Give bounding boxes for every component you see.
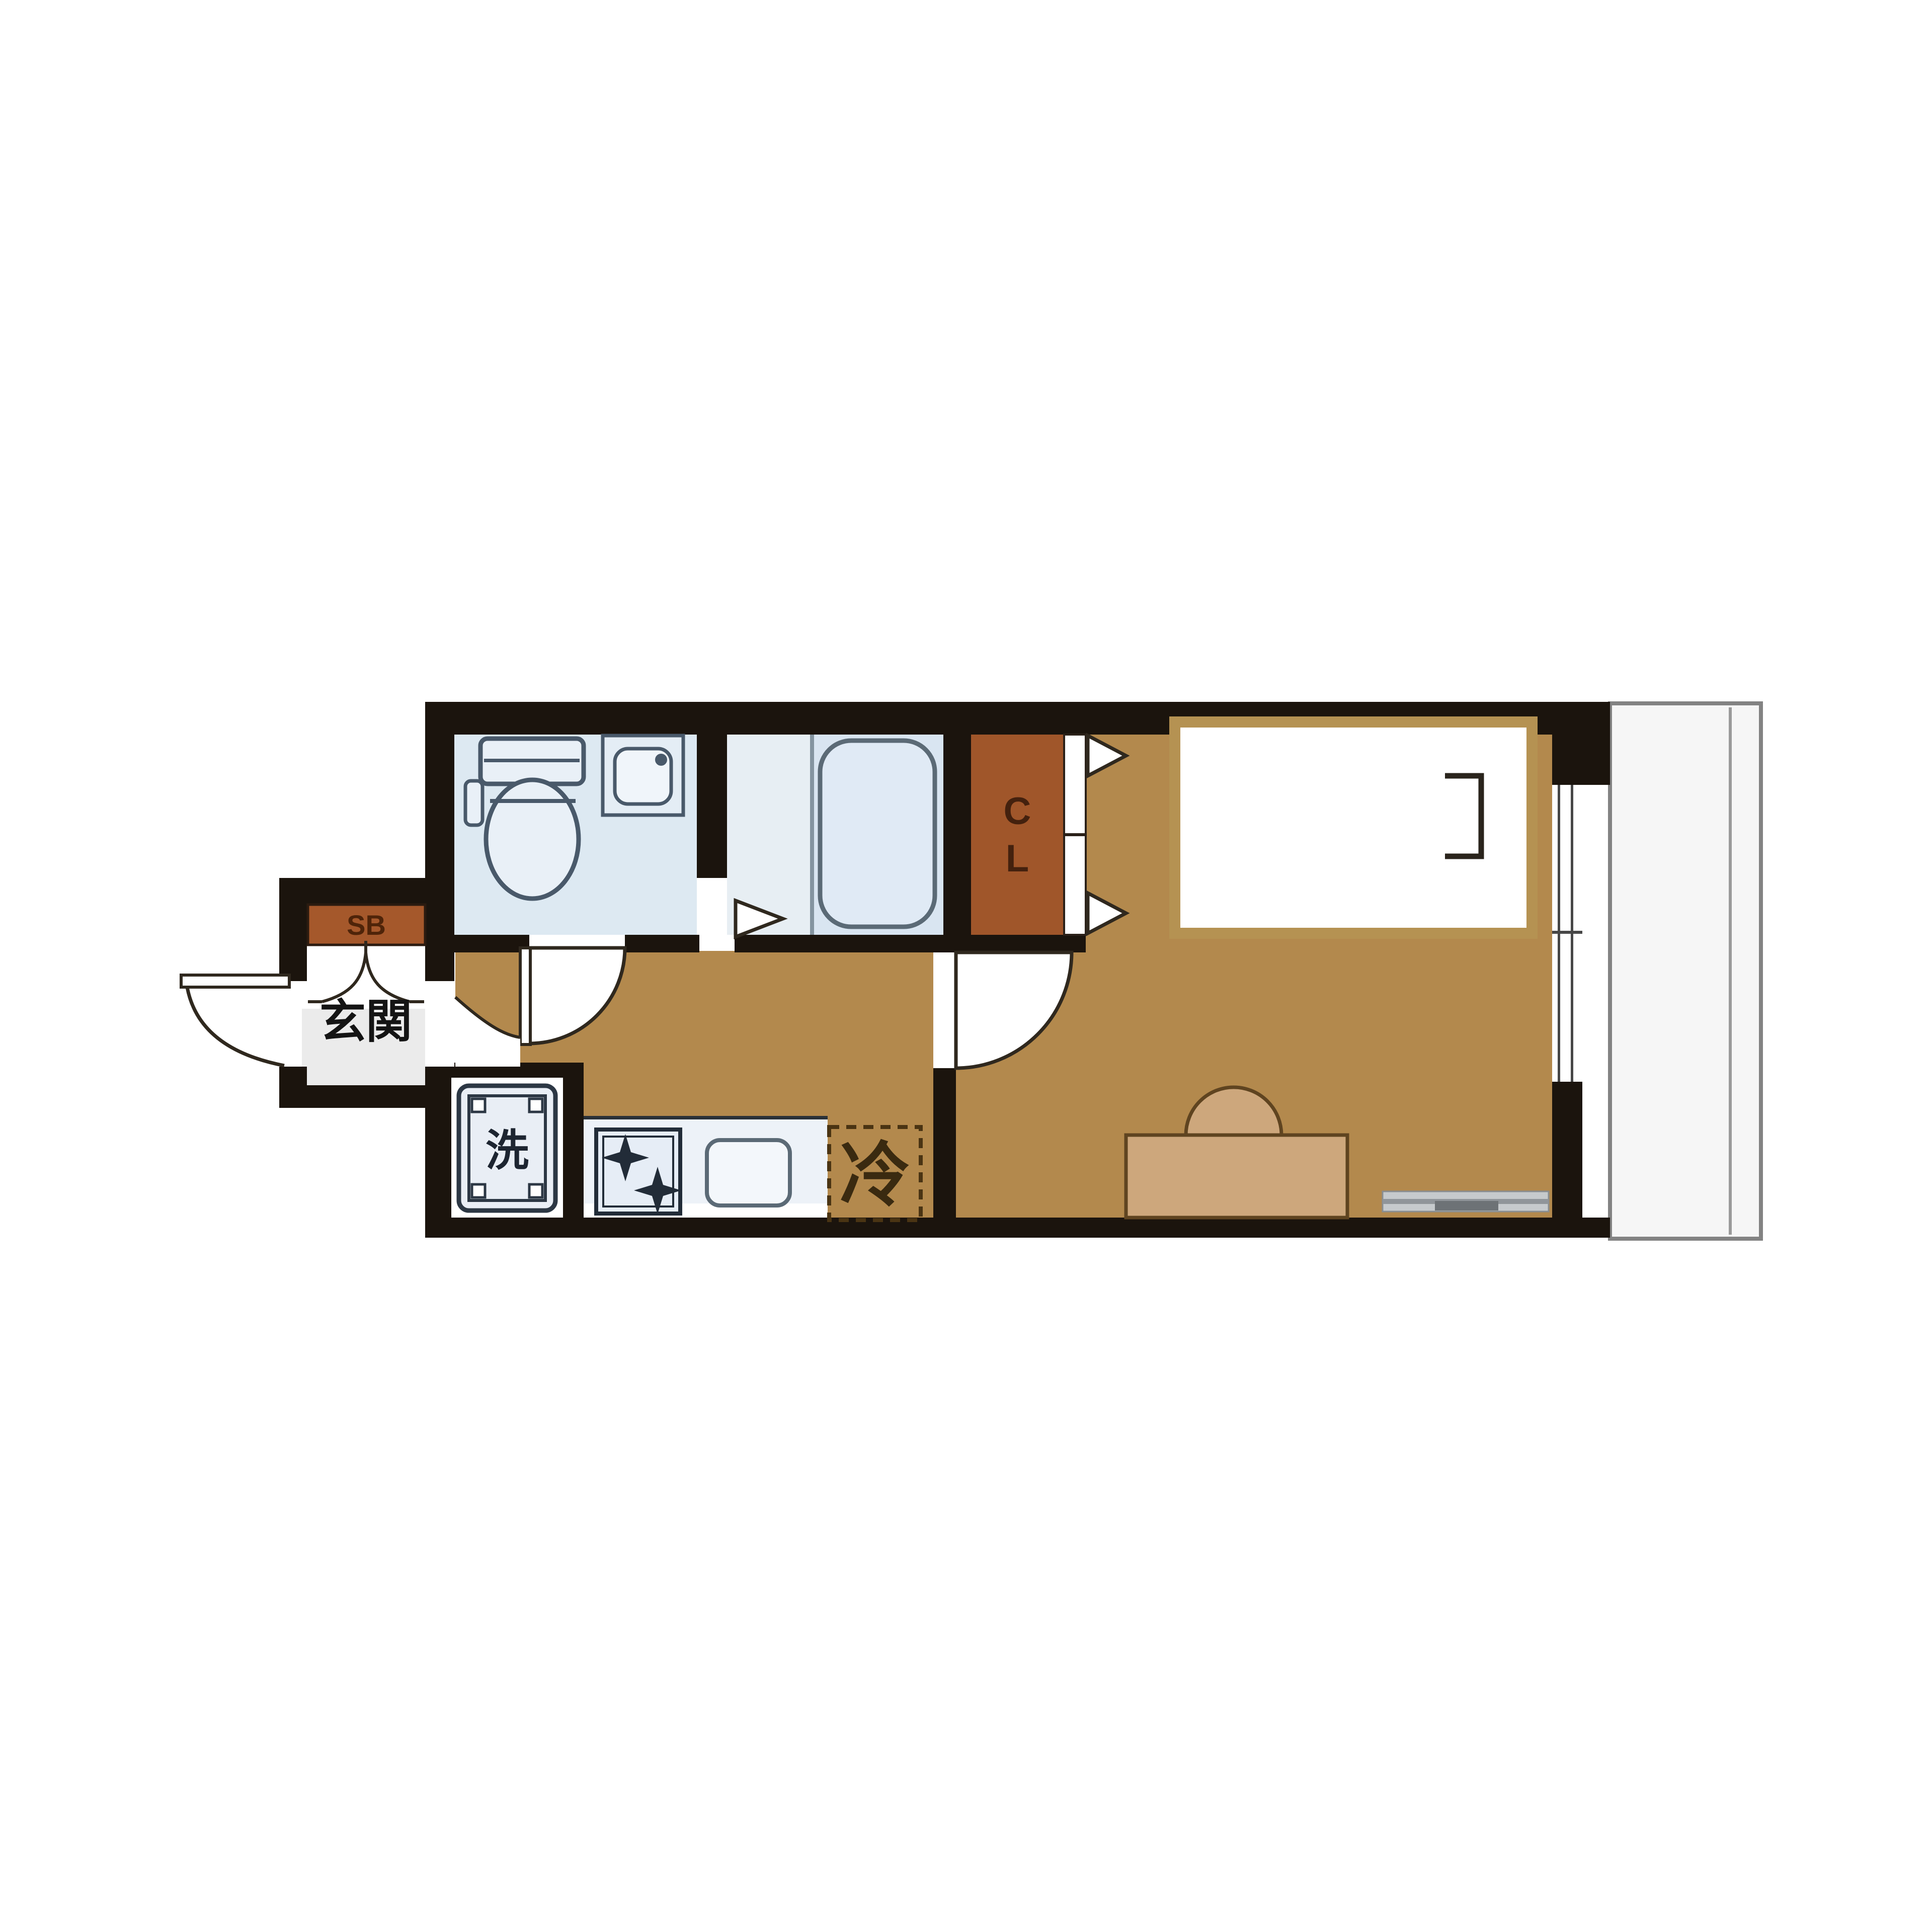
wall-washer-right-stub [563, 1078, 584, 1218]
bathroom-divider-line [810, 735, 814, 935]
wall-under-closet [933, 935, 1086, 952]
wall-entrance-left-upper [279, 878, 307, 981]
floorplan-page: SB 玄関 C L 冷 洗 [0, 0, 1932, 1932]
balcony-floor [1610, 703, 1761, 1239]
washer-corner-1 [472, 1099, 485, 1112]
wall-right-corner-stub [1582, 735, 1610, 785]
entrance-label: 玄関 [319, 996, 412, 1048]
wall-toilet-bath-divider [697, 702, 727, 878]
kitchen-sink-icon [707, 1140, 790, 1205]
washer-corner-3 [472, 1184, 485, 1197]
toilet-door-leaf [520, 948, 530, 1044]
kitchen-counter-edge [584, 1116, 828, 1119]
toilet-flush-handle-icon [465, 781, 482, 825]
washer-corner-4 [529, 1184, 542, 1197]
desk-icon [1126, 1135, 1347, 1218]
refrigerator-label: 冷 [840, 1136, 910, 1215]
closet-label-c: C [1004, 790, 1031, 833]
toilet-tank-line [484, 759, 580, 762]
entrance-hall-opening [425, 981, 454, 1067]
washer-corner-2 [529, 1099, 542, 1112]
shoe-box-label: SB [347, 909, 386, 941]
stove-icon [596, 1130, 680, 1214]
wall-hall-mainroom [933, 1068, 956, 1218]
closet-label-l: L [1006, 837, 1029, 880]
washer-label: 洗 [486, 1126, 529, 1175]
closet-door-tick [1064, 833, 1086, 836]
bathtub-icon [820, 741, 935, 927]
wall-right-upper [1552, 702, 1582, 785]
entrance-door-arc [187, 987, 284, 1066]
entrance-door-leaf [181, 975, 289, 987]
wall-bottom [425, 1218, 1610, 1238]
wall-right-lower [1552, 1082, 1582, 1238]
wall-under-toilet-right [625, 935, 699, 952]
closet-floor [971, 735, 1064, 935]
window-center-tick [1552, 931, 1582, 934]
tv-board-center [1435, 1201, 1498, 1211]
toilet-bowl-icon [486, 780, 579, 899]
balcony-railing-line [1729, 707, 1732, 1235]
wall-bath-closet [943, 702, 971, 935]
wall-under-toilet-left [453, 935, 529, 952]
toilet-sink-faucet-dot [655, 754, 667, 766]
wall-entrance-bottom [279, 1085, 454, 1108]
floorplan-drawing: SB 玄関 C L 冷 洗 [0, 0, 1932, 1932]
wall-under-bath [735, 935, 933, 952]
wall-left-upper [425, 702, 454, 981]
toilet-seat-line [490, 799, 576, 803]
